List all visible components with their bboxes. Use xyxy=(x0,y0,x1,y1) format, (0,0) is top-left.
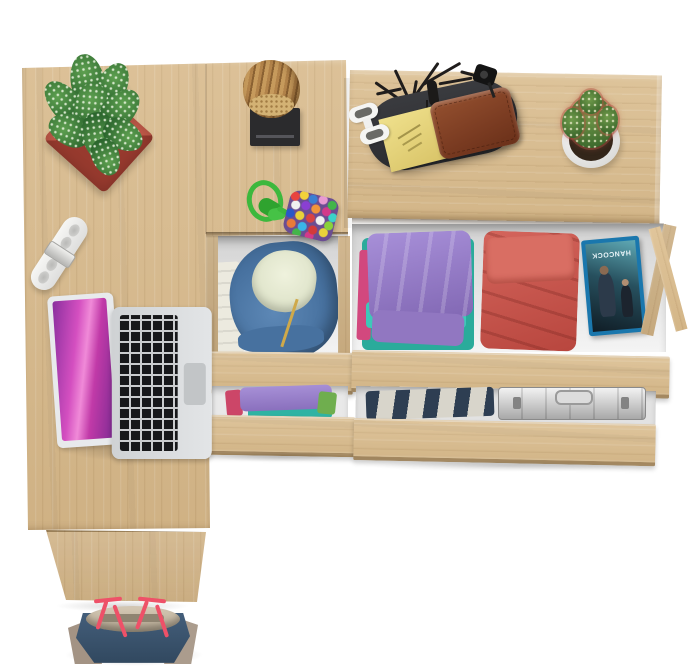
laptop-display xyxy=(52,298,116,441)
laptop-body xyxy=(112,307,212,459)
desk-side-panel xyxy=(40,530,208,606)
clothes-stack-purple-top xyxy=(367,230,474,320)
cactus-lobe xyxy=(580,90,602,114)
dvd-title: HANCOCK xyxy=(586,243,637,259)
dvd-case: HANCOCK xyxy=(581,236,647,337)
potted-plant xyxy=(40,52,160,182)
log-end-grain xyxy=(249,94,294,116)
desk-pedestal-seam xyxy=(205,64,207,234)
folded-shirts-navy xyxy=(366,387,495,420)
pedestal-drawer2-front xyxy=(208,415,356,458)
laptop-keyboard xyxy=(120,315,178,451)
wallet-stitching xyxy=(433,90,516,155)
sunglasses-frame xyxy=(358,122,391,146)
note-scribble xyxy=(408,142,423,152)
clothes-stack-red-flap xyxy=(485,234,575,285)
briefcase-latch-right xyxy=(621,397,629,409)
key-fob-lens xyxy=(479,70,489,80)
pedestal-shadow xyxy=(216,452,346,462)
product-photo-scene: HANCOCK xyxy=(0,0,700,666)
laptop-trackpad xyxy=(184,363,206,405)
pedestal-right-rail xyxy=(338,236,350,358)
dvd-figure-large xyxy=(597,272,617,317)
cactus-group xyxy=(556,88,628,172)
clothes-stack-purple-flap xyxy=(371,310,465,347)
clothes-green-edge xyxy=(317,391,337,415)
log-ornament xyxy=(243,60,300,118)
cactus-lobe xyxy=(562,108,584,138)
tote-bag-group xyxy=(64,598,204,666)
bag-strap xyxy=(138,597,166,604)
dresser-shadow xyxy=(370,460,640,472)
valet-tray-group xyxy=(362,50,537,190)
bag-interior-slot xyxy=(100,614,164,622)
cactus-lobe xyxy=(598,106,618,134)
briefcase-handle xyxy=(555,390,593,405)
dvd-cover-art: HANCOCK xyxy=(585,240,642,332)
briefcase xyxy=(498,387,646,420)
sunglasses-lens xyxy=(365,128,385,141)
stand-groove xyxy=(256,135,294,138)
dvd-figure-small xyxy=(620,285,634,318)
briefcase-latch-left xyxy=(513,397,521,409)
laptop xyxy=(49,281,215,472)
